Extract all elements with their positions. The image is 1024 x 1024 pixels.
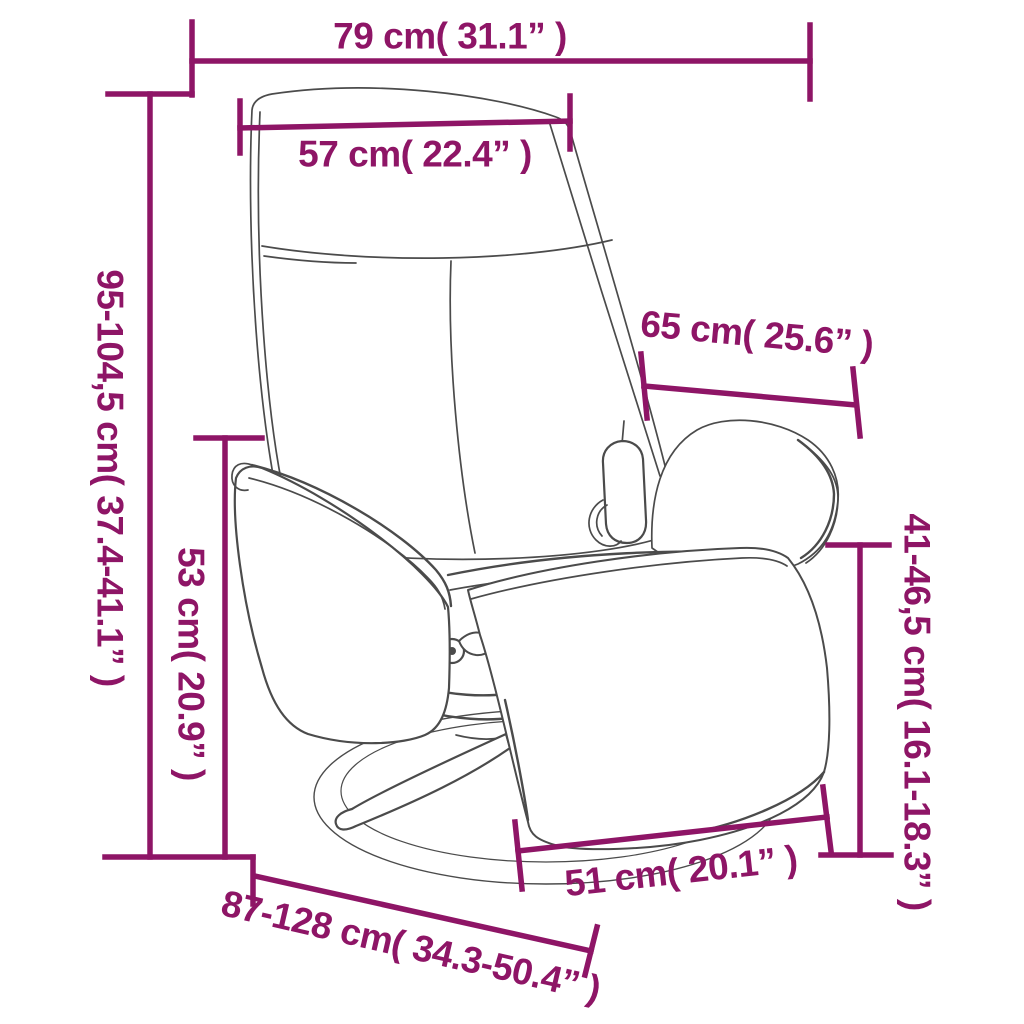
dim-label-armrest-height: 53 cm( 20.9” ): [173, 547, 210, 781]
dim-label-overall-height: 95-104,5 cm( 37.4-41.1” ): [92, 269, 129, 686]
dim-label-overall-width: 79 cm( 31.1” ): [333, 18, 567, 55]
chair-drawing: [232, 88, 838, 884]
dim-label-footrest-height: 41-46,5 cm( 16.1-18.3” ): [899, 513, 936, 910]
remote-control: [603, 441, 646, 543]
dimension-diagram: 79 cm( 31.1” ) 57 cm( 22.4” ) 95-104,5 c…: [0, 0, 1024, 1024]
dim-footrest-height-line: [821, 545, 891, 855]
dim-label-backrest-width: 57 cm( 22.4” ): [298, 136, 532, 173]
